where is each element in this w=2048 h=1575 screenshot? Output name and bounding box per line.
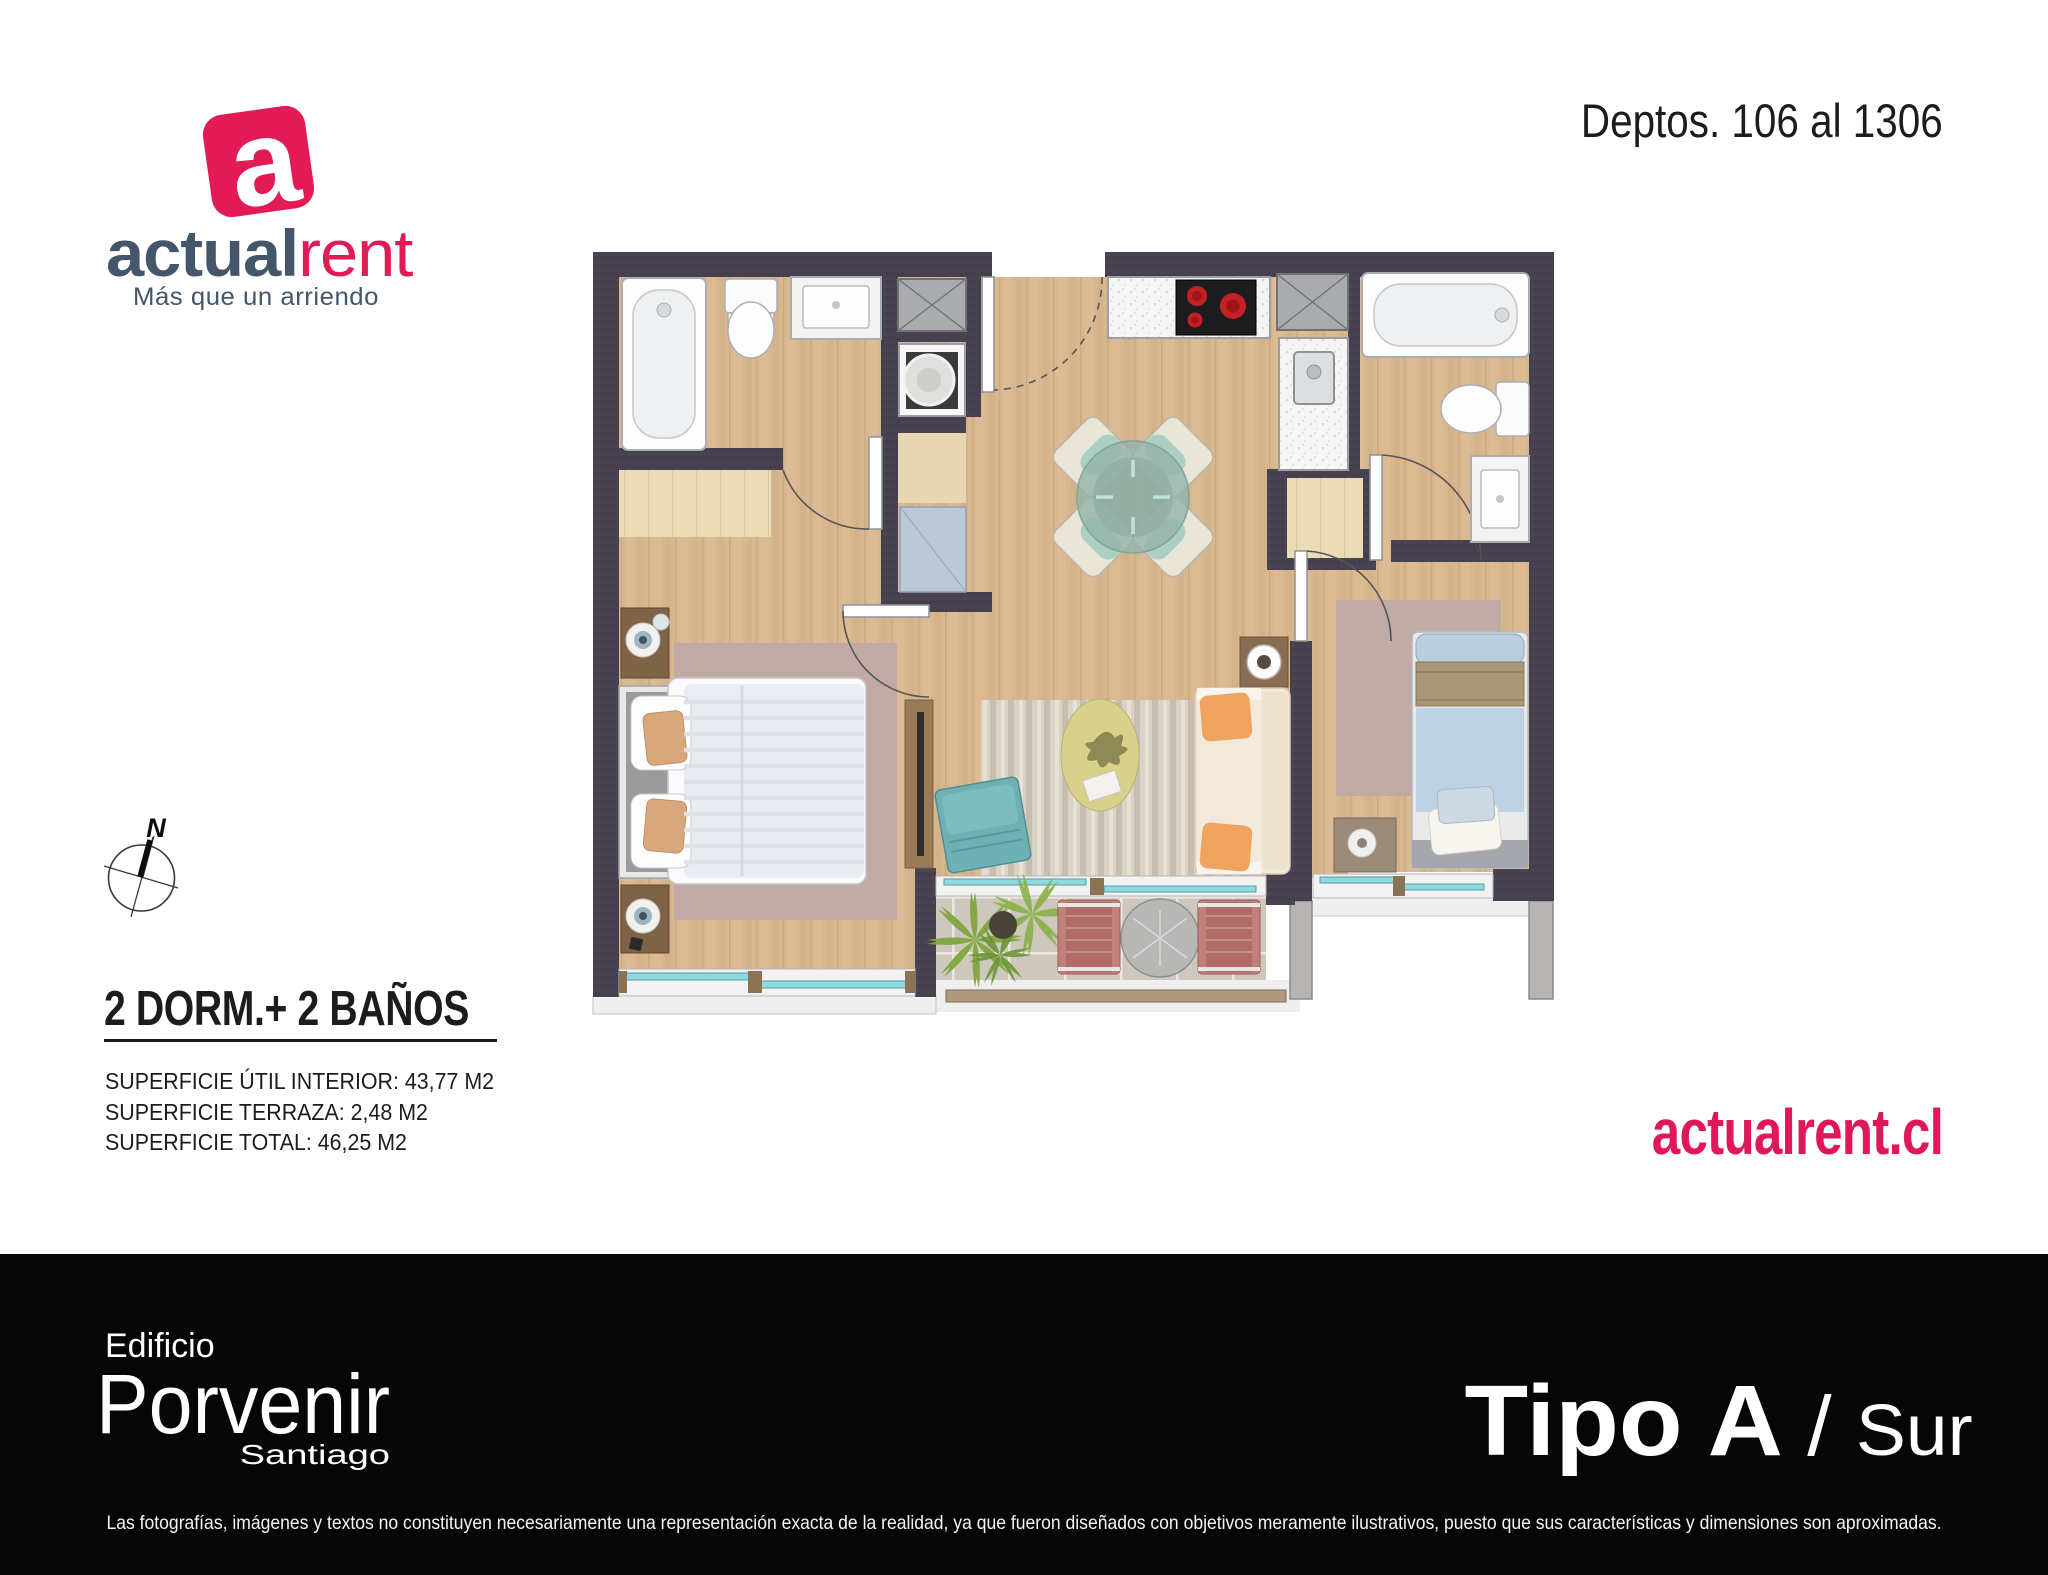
- svg-text:N: N: [146, 813, 166, 843]
